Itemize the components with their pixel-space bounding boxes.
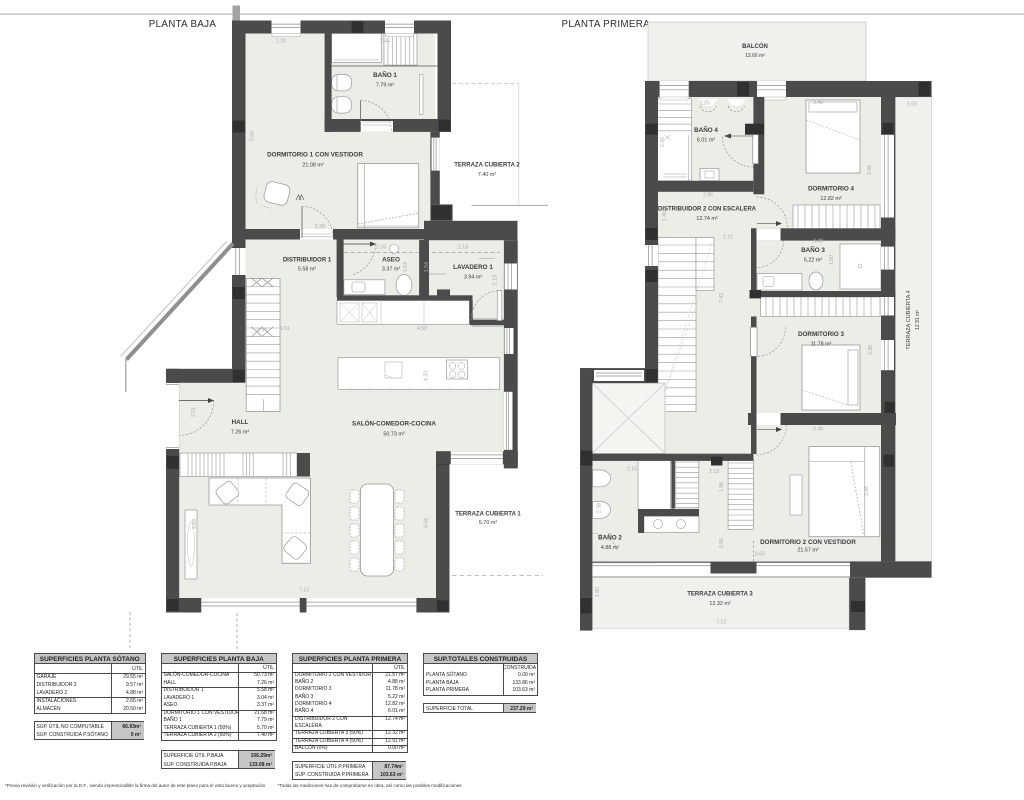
svg-text:7.79 m²: 7.79 m² [376,83,394,89]
svg-text:DISTRIBUIDOR 2 CON ESCALERA: DISTRIBUIDOR 2 CON ESCALERA [658,207,757,213]
svg-text:HALL: HALL [232,419,249,426]
svg-text:DORMITORIO 1 CON VESTIDOR: DORMITORIO 1 CON VESTIDOR [267,152,363,159]
svg-text:1.54: 1.54 [403,262,409,272]
svg-text:2.95: 2.95 [703,193,713,199]
svg-text:0.94: 0.94 [257,328,267,334]
svg-text:5.22 m²: 5.22 m² [804,258,822,264]
svg-text:1.80: 1.80 [595,587,601,597]
svg-text:2.20: 2.20 [276,39,286,45]
svg-text:1.50: 1.50 [829,255,835,265]
svg-text:21.08 m²: 21.08 m² [302,163,323,169]
svg-text:1.61: 1.61 [280,326,290,332]
svg-text:3.37 m²: 3.37 m² [382,267,400,273]
svg-text:3.48: 3.48 [813,239,823,245]
svg-text:4.04: 4.04 [424,518,430,528]
svg-text:12.32 m²: 12.32 m² [709,601,730,607]
svg-text:3.98: 3.98 [864,486,870,496]
svg-text:DORMITORIO 2 CON VESTIDOR: DORMITORIO 2 CON VESTIDOR [760,539,856,546]
svg-text:3.38: 3.38 [868,345,874,355]
svg-text:BAÑO 3: BAÑO 3 [801,245,825,254]
svg-text:LAVADERO 1: LAVADERO 1 [453,264,493,271]
svg-text:TERRAZA CUBIERTA 1: TERRAZA CUBIERTA 1 [455,512,521,518]
svg-text:7.13: 7.13 [299,588,309,594]
svg-text:6.01 m²: 6.01 m² [697,138,715,144]
svg-text:50.73 m²: 50.73 m² [383,432,404,438]
svg-text:BAÑO 4: BAÑO 4 [694,125,718,134]
svg-text:11.78 m²: 11.78 m² [811,342,832,348]
svg-text:2.19: 2.19 [493,275,499,285]
svg-text:12.82 m²: 12.82 m² [820,196,841,202]
svg-text:DORMITORIO 3: DORMITORIO 3 [798,331,845,338]
svg-text:1.54: 1.54 [424,262,430,272]
svg-text:BAÑO 1: BAÑO 1 [373,70,397,79]
svg-text:1.00: 1.00 [907,102,917,108]
svg-text:PLANTA BAJA: PLANTA BAJA [149,19,217,30]
svg-text:SALÓN-COMEDOR-COCINA: SALÓN-COMEDOR-COCINA [352,419,436,428]
svg-text:7.40 m²: 7.40 m² [478,172,496,178]
svg-text:2.36: 2.36 [660,137,666,147]
svg-text:7.13: 7.13 [716,620,726,626]
svg-text:2.15: 2.15 [627,467,637,473]
svg-text:ASEO: ASEO [382,257,400,264]
svg-text:2.01: 2.01 [191,407,197,417]
svg-text:PLANTA PRIMERA: PLANTA PRIMERA [562,19,651,30]
svg-text:BAÑO 2: BAÑO 2 [598,533,622,542]
svg-text:2.16: 2.16 [376,245,386,251]
svg-text:4.50: 4.50 [417,326,427,332]
svg-text:3.68: 3.68 [867,165,873,175]
svg-text:TERRAZA CUBIERTA 3: TERRAZA CUBIERTA 3 [687,592,753,598]
svg-text:1.11: 1.11 [723,235,733,241]
svg-text:13.66 m²: 13.66 m² [745,53,765,59]
svg-text:12.74 m²: 12.74 m² [696,216,717,222]
svg-text:1.46: 1.46 [662,211,668,221]
svg-text:1.98: 1.98 [719,482,725,492]
svg-text:0.90: 0.90 [719,538,725,548]
svg-text:3.48: 3.48 [813,427,823,433]
svg-text:7.42: 7.42 [719,293,725,303]
svg-text:DORMITORIO 4: DORMITORIO 4 [808,186,855,193]
svg-text:3.94 m²: 3.94 m² [464,275,482,281]
svg-text:5.66: 5.66 [250,131,256,141]
svg-text:BALCÓN: BALCÓN [742,42,768,50]
svg-text:4.88 m²: 4.88 m² [601,545,619,551]
svg-text:TERRAZA CUBIERTA 4: TERRAZA CUBIERTA 4 [906,290,912,349]
svg-text:5.28: 5.28 [315,224,325,230]
svg-text:2.38: 2.38 [597,503,603,513]
svg-text:2.85: 2.85 [700,101,710,107]
svg-text:5.58 m²: 5.58 m² [298,267,316,273]
svg-text:4.23: 4.23 [424,371,430,381]
svg-text:2.46: 2.46 [380,39,390,45]
svg-text:7.26 m²: 7.26 m² [231,430,249,436]
svg-text:3.99: 3.99 [192,519,198,529]
svg-text:12.91 m²: 12.91 m² [915,310,921,330]
svg-text:2.13: 2.13 [709,469,719,475]
svg-text:5.70 m²: 5.70 m² [479,520,497,526]
svg-text:21.57 m²: 21.57 m² [797,548,818,554]
svg-text:DISTRIBUIDOR 1: DISTRIBUIDOR 1 [283,258,332,264]
svg-text:2.18: 2.18 [458,245,468,251]
svg-text:TERRAZA CUBIERTA 2: TERRAZA CUBIERTA 2 [454,163,520,169]
svg-text:6.65: 6.65 [755,552,765,558]
svg-text:3.48: 3.48 [813,100,823,106]
